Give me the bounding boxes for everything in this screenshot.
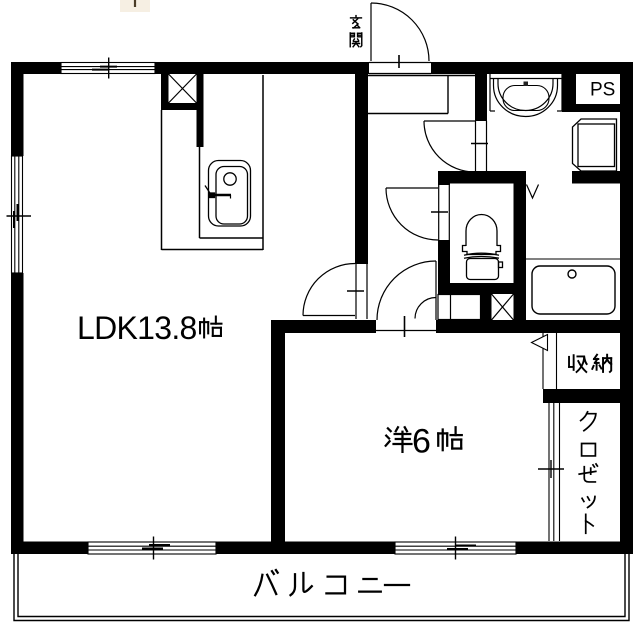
svg-text:LDK13.8: LDK13.8: [77, 310, 197, 346]
svg-text:PS: PS: [590, 80, 615, 101]
svg-text:6: 6: [412, 423, 431, 461]
